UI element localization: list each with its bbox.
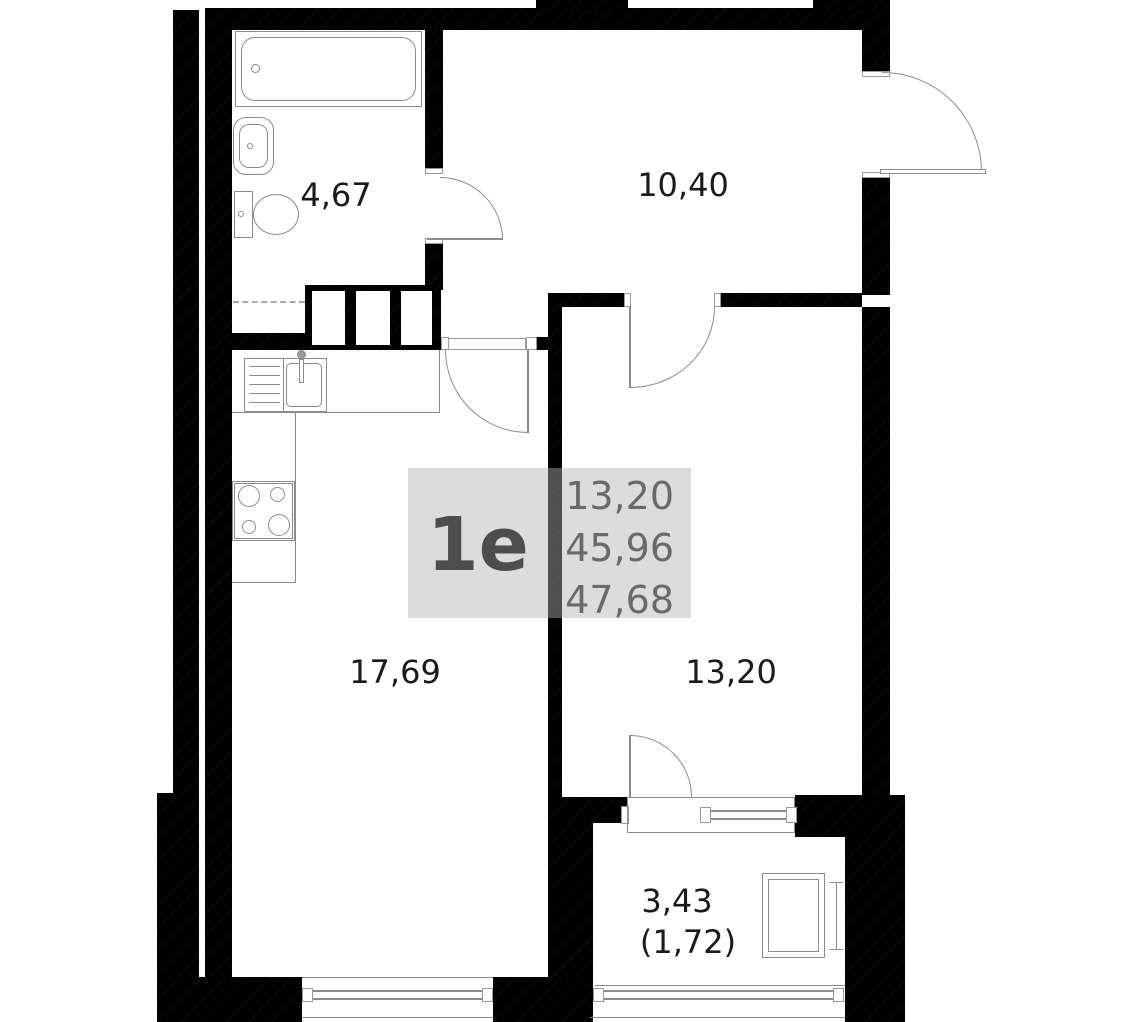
balcony-glazing — [603, 990, 833, 1000]
bedroom-door-leaf — [629, 307, 631, 388]
unit-area-room: 13,20 — [548, 470, 674, 522]
hallway-area-label: 10,40 — [608, 166, 758, 204]
drainboard-line — [249, 366, 280, 367]
living-window-cap-right — [482, 988, 493, 1002]
jamb-bathroom-top — [425, 168, 443, 174]
bedroom-door-arc — [630, 307, 715, 388]
faucet-icon — [297, 350, 306, 359]
balcony-reduced-area-label: (1,72) — [608, 923, 768, 961]
balcony-door-leaf — [629, 735, 631, 797]
bathroom-door-leaf — [427, 238, 503, 240]
vent-shaft-box-1 — [312, 291, 345, 345]
wall-bedroom-bottom-right — [795, 795, 905, 837]
wall-bottom-left — [157, 977, 302, 1022]
unit-number-label: 1e — [408, 501, 548, 589]
wall-top-bump-center — [536, 0, 628, 10]
unit-areas-list: 13,20 45,96 47,68 — [548, 470, 674, 626]
stove-burner-small — [270, 487, 285, 502]
balcony-unit-cap-right — [786, 807, 797, 823]
bedroom-area-label: 13,20 — [656, 653, 806, 691]
wall-right-top — [862, 30, 890, 74]
living-window-cap-left — [302, 988, 313, 1002]
wash-basin-inner — [239, 124, 268, 168]
living-door-leaf — [527, 350, 529, 433]
faucet-stem — [299, 359, 304, 383]
vent-shaft-box-2 — [356, 291, 390, 345]
wall-bedroom-top-right — [720, 293, 862, 307]
wall-bathroom-right-upper — [425, 30, 443, 170]
living-window-glazing — [312, 990, 483, 1000]
wall-balcony-left-top — [548, 797, 627, 823]
balcony-unit-glazing — [710, 810, 788, 820]
balcony-area-label: 3,43 — [612, 882, 742, 920]
dimension-bar-cap-top — [830, 882, 843, 883]
drainboard-line — [249, 402, 280, 403]
stove-burner-large — [238, 485, 260, 507]
wall-bottom-mid — [493, 977, 590, 1022]
wall-bathroom-bottom — [205, 333, 305, 350]
entry-door-leaf — [880, 169, 986, 174]
balcony-glazing-cap-right — [833, 988, 844, 1002]
living-door-arc — [445, 350, 528, 433]
stove-burner-small — [242, 520, 256, 534]
jamb-bedroom-right — [714, 293, 721, 307]
jamb-kitchen-right — [526, 337, 537, 350]
stove-burner-large — [268, 514, 290, 536]
drainboard-line — [249, 393, 280, 394]
toilet-flush-button — [238, 211, 244, 217]
vent-shaft-box-3 — [401, 291, 432, 345]
wall-right-lower — [862, 307, 890, 795]
drainboard-line — [249, 384, 280, 385]
balcony-glazing-inner-line — [595, 985, 845, 986]
balcony-unit-cap-left — [700, 807, 711, 823]
wall-top — [205, 8, 890, 30]
bathtub-drain — [251, 64, 260, 73]
drainboard-line — [249, 375, 280, 376]
wall-bedroom-top-left — [562, 293, 624, 307]
unit-area-total: 47,68 — [548, 574, 674, 626]
cabinet-inner — [768, 879, 819, 952]
floor-plan-canvas: 1e 13,20 45,96 47,68 4,67 10,40 17,69 13… — [0, 0, 1145, 1022]
wall-left-inner — [205, 8, 232, 1022]
wall-right-mid — [862, 177, 890, 295]
living-window-outer-line — [302, 1017, 493, 1018]
wash-basin-drain — [247, 143, 253, 149]
kitchen-sink-basin — [286, 363, 322, 407]
dimension-bar-cap-bottom — [830, 949, 843, 950]
balcony-glazing-outer-line — [590, 1017, 845, 1018]
balcony-glazing-cap-left — [593, 988, 604, 1002]
living-door-threshold — [448, 338, 526, 350]
wall-right-pier-bottom — [845, 837, 905, 1022]
entry-door-arc — [882, 72, 982, 172]
balcony-door-arc — [630, 735, 692, 797]
bathroom-area-label: 4,67 — [270, 176, 402, 214]
unit-area-living: 45,96 — [548, 522, 674, 574]
wall-bathroom-right-lower — [425, 243, 443, 290]
bathroom-door-arc — [440, 177, 503, 240]
jamb-bedroom-left — [624, 293, 631, 307]
dimension-bar — [836, 882, 837, 950]
living-kitchen-area-label: 17,69 — [320, 653, 470, 691]
kitchen-sink-divider — [283, 358, 284, 412]
wall-top-bump-right — [813, 0, 890, 10]
living-window-sill — [302, 977, 493, 978]
bathtub-inner — [241, 37, 416, 101]
washer-space-dashed-line — [233, 301, 305, 303]
